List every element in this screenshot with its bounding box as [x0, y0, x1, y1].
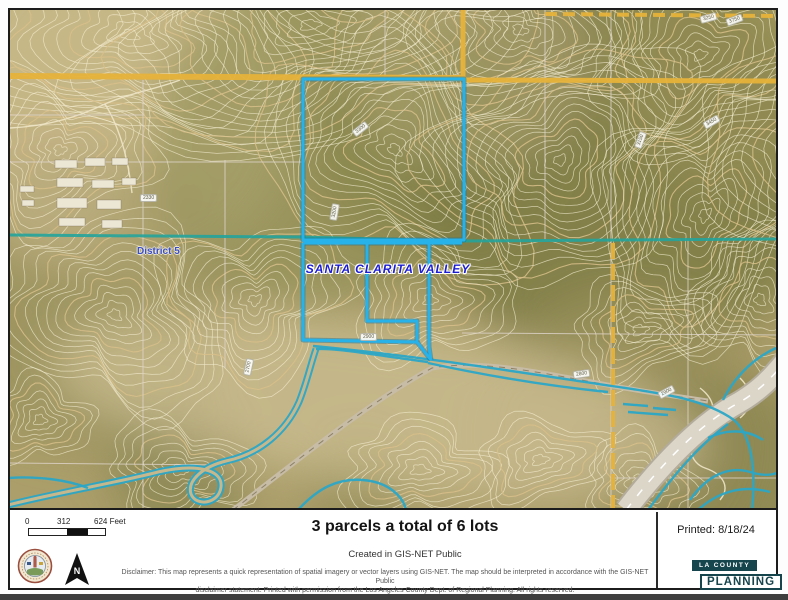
logo-planning: PLANNING — [700, 574, 782, 590]
scale-bar — [28, 528, 106, 536]
scale-tick-624: 624 Feet — [94, 517, 126, 526]
map-subtitle: Created in GIS-NET Public — [135, 549, 675, 560]
elevation-label: 2330 — [140, 194, 157, 202]
footer: 0 312 624 Feet N — [10, 512, 776, 588]
map-canvas — [10, 10, 776, 508]
scale-tick-0: 0 — [25, 517, 29, 526]
county-seal-logo — [17, 548, 53, 584]
title-block: 3 parcels a total of 6 lots — [135, 518, 675, 536]
scale-seg-2 — [67, 529, 88, 535]
map-title: 3 parcels a total of 6 lots — [312, 518, 499, 535]
printed-date: Printed: 8/18/24 — [658, 524, 774, 536]
disclaimer-line-1: Disclaimer: This map represents a quick … — [115, 568, 655, 586]
logo-la-county: LA COUNTY — [692, 560, 757, 571]
scale-seg-1 — [29, 529, 67, 535]
scale-seg-3 — [88, 529, 105, 535]
bottom-strip — [0, 594, 788, 600]
scale-tick-312: 312 — [57, 517, 70, 526]
disclaimer-text: Disclaimer: This map represents a quick … — [115, 568, 655, 595]
map-area: SANTA CLARITA VALLEY District 5 33003200… — [10, 10, 776, 510]
north-arrow-icon: N — [62, 552, 92, 588]
elevation-label: 2900 — [360, 333, 377, 341]
svg-text:N: N — [74, 566, 81, 576]
sheet: SANTA CLARITA VALLEY District 5 33003200… — [8, 8, 778, 590]
map-print-page: SANTA CLARITA VALLEY District 5 33003200… — [0, 0, 788, 600]
la-county-planning-logo: LA COUNTY PLANNING — [688, 554, 776, 590]
